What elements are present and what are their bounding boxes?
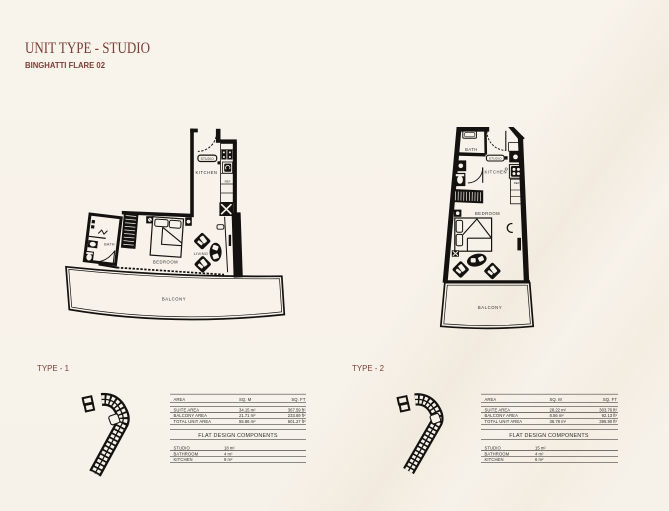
svg-text:STUDIO: STUDIO bbox=[174, 446, 191, 451]
svg-text:4 m²: 4 m² bbox=[224, 451, 233, 456]
svg-text:REF: REF bbox=[514, 181, 520, 185]
svg-text:REF: REF bbox=[225, 180, 231, 184]
svg-text:55.86 m²: 55.86 m² bbox=[239, 419, 256, 424]
svg-text:SUITE AREA: SUITE AREA bbox=[485, 407, 511, 412]
svg-text:SUITE AREA: SUITE AREA bbox=[174, 407, 200, 412]
svg-text:SQ. M: SQ. M bbox=[550, 397, 563, 402]
svg-text:4 m²: 4 m² bbox=[535, 451, 544, 456]
svg-text:BATHROOM: BATHROOM bbox=[174, 451, 199, 456]
svg-text:303.76 ft²: 303.76 ft² bbox=[599, 407, 617, 412]
svg-text:TYPE - 1: TYPE - 1 bbox=[37, 364, 69, 373]
svg-text:233.69 ft²: 233.69 ft² bbox=[288, 413, 306, 418]
svg-text:STUDIO: STUDIO bbox=[489, 157, 502, 161]
svg-text:367.59 ft²: 367.59 ft² bbox=[288, 407, 306, 412]
svg-text:STUDIO: STUDIO bbox=[485, 446, 502, 451]
svg-text:UNIT TYPE - STUDIO: UNIT TYPE - STUDIO bbox=[25, 40, 150, 57]
svg-text:TYPE - 2: TYPE - 2 bbox=[352, 364, 384, 373]
svg-text:SQ. M: SQ. M bbox=[239, 397, 252, 402]
svg-text:LIVING: LIVING bbox=[194, 251, 209, 256]
svg-text:92.13 ft²: 92.13 ft² bbox=[602, 413, 618, 418]
svg-text:BALCONY: BALCONY bbox=[478, 305, 502, 310]
svg-text:SQ. FT: SQ. FT bbox=[603, 397, 617, 402]
svg-text:8.56 m²: 8.56 m² bbox=[550, 413, 565, 418]
svg-text:34.15 m²: 34.15 m² bbox=[239, 407, 256, 412]
svg-text:601.27 ft²: 601.27 ft² bbox=[288, 419, 306, 424]
svg-text:21.71 m²: 21.71 m² bbox=[239, 413, 256, 418]
svg-text:BATHROOM: BATHROOM bbox=[485, 451, 510, 456]
svg-text:36.78 m²: 36.78 m² bbox=[550, 419, 567, 424]
svg-text:FLAT DESIGN COMPONENTS: FLAT DESIGN COMPONENTS bbox=[509, 433, 589, 439]
svg-text:BALCONY AREA: BALCONY AREA bbox=[174, 413, 208, 418]
svg-text:KITCHEN: KITCHEN bbox=[196, 170, 218, 175]
svg-text:6 m²: 6 m² bbox=[535, 457, 544, 462]
svg-text:KITCHEN: KITCHEN bbox=[485, 457, 504, 462]
svg-text:BALCONY: BALCONY bbox=[162, 297, 186, 302]
svg-text:BEDROOM: BEDROOM bbox=[153, 260, 178, 265]
svg-text:BATH: BATH bbox=[465, 147, 477, 152]
svg-text:AREA: AREA bbox=[485, 397, 497, 402]
svg-text:15 m²: 15 m² bbox=[535, 446, 546, 451]
svg-text:FLAT DESIGN COMPONENTS: FLAT DESIGN COMPONENTS bbox=[198, 433, 278, 439]
svg-text:KITCHEN: KITCHEN bbox=[485, 169, 508, 174]
svg-text:AREA: AREA bbox=[174, 397, 186, 402]
svg-text:BATH: BATH bbox=[104, 242, 115, 246]
svg-text:395.90 ft²: 395.90 ft² bbox=[599, 419, 617, 424]
svg-text:BALCONY AREA: BALCONY AREA bbox=[485, 413, 519, 418]
svg-text:BINGHATTI FLARE 02: BINGHATTI FLARE 02 bbox=[25, 60, 105, 70]
svg-text:18 m²: 18 m² bbox=[224, 446, 235, 451]
svg-text:TOTAL UNIT AREA: TOTAL UNIT AREA bbox=[485, 419, 523, 424]
svg-text:BEDROOM: BEDROOM bbox=[475, 211, 500, 216]
svg-text:TOTAL UNIT AREA: TOTAL UNIT AREA bbox=[174, 419, 212, 424]
svg-text:STUDIO: STUDIO bbox=[201, 157, 215, 161]
svg-text:9 m²: 9 m² bbox=[224, 457, 233, 462]
svg-text:SQ. FT: SQ. FT bbox=[291, 397, 305, 402]
svg-text:28.22 m²: 28.22 m² bbox=[550, 407, 567, 412]
svg-text:KITCHEN: KITCHEN bbox=[174, 457, 193, 462]
